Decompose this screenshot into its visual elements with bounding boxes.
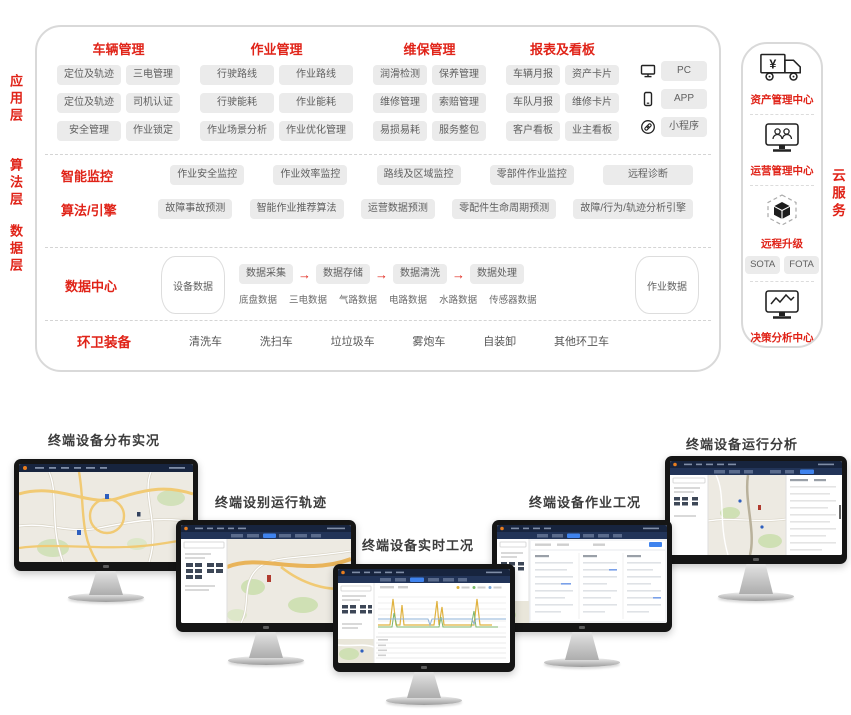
monitor-stand bbox=[407, 672, 441, 698]
layer-label-algorithm: 算法层 bbox=[6, 158, 25, 209]
ota-pills: SOTA FOTA bbox=[745, 256, 819, 274]
equipment-item: 垃垃圾车 bbox=[331, 333, 375, 349]
app-group-reports: 报表及看板 车辆月报 资产卡片 车队月报 维修卡片 客户看板 业主看板 bbox=[506, 39, 619, 151]
analytics-monitor-icon bbox=[763, 289, 801, 326]
data-source: 水路数据 bbox=[439, 292, 477, 306]
group-title-vehicle: 车辆管理 bbox=[92, 39, 144, 58]
feature-pill: 服务整包 bbox=[432, 121, 486, 141]
pc-icon bbox=[639, 63, 656, 80]
cloud-section-title: 资产管理中心 bbox=[751, 92, 814, 107]
feature-pill: 定位及轨迹 bbox=[57, 93, 121, 113]
algo-row-title: 算法/引擎 bbox=[61, 200, 141, 219]
feature-pill: 三电管理 bbox=[126, 65, 180, 85]
group-title-maintenance: 维保管理 bbox=[403, 39, 455, 58]
algo-row-title: 智能监控 bbox=[61, 166, 141, 185]
feature-pill: 客户看板 bbox=[506, 121, 560, 141]
yen-glyph: ¥ bbox=[769, 57, 776, 71]
monitor-stand bbox=[565, 632, 599, 660]
monitor-bezel bbox=[14, 459, 198, 571]
monitor-stand bbox=[739, 564, 773, 594]
pill-grid: 行驶路线 作业路线 行驶能耗 作业能耗 作业场景分析 作业优化管理 bbox=[200, 65, 353, 141]
monitor-bezel bbox=[492, 520, 672, 632]
data-source: 电路数据 bbox=[389, 292, 427, 306]
monitor-chin bbox=[670, 555, 842, 564]
cloud-section-title: 远程升级 bbox=[761, 236, 803, 251]
feature-pill: 司机认证 bbox=[126, 93, 180, 113]
channel-miniprogram: 小程序 bbox=[639, 117, 707, 137]
truck-icon: ¥ bbox=[759, 51, 805, 88]
data-source: 传感器数据 bbox=[489, 292, 537, 306]
screen-realtime-chart bbox=[338, 569, 510, 663]
algo-pill: 路线及区域监控 bbox=[377, 165, 461, 185]
fota-pill: FOTA bbox=[784, 256, 819, 274]
data-source: 气路数据 bbox=[339, 292, 377, 306]
feature-pill: 作业能耗 bbox=[279, 93, 353, 113]
feature-pill: 车辆月报 bbox=[506, 65, 560, 85]
flow-arrow-icon: → bbox=[452, 268, 465, 281]
monitor-label-track: 终端设别运行轨迹 bbox=[215, 492, 327, 511]
cloud-section-ota: 远程升级 SOTA FOTA bbox=[750, 185, 814, 281]
feature-pill: 保养管理 bbox=[432, 65, 486, 85]
feature-pill: 定位及轨迹 bbox=[57, 65, 121, 85]
screen-work-table bbox=[497, 525, 667, 623]
data-source-labels: 底盘数据 三电数据 气路数据 电路数据 水路数据 传感器数据 bbox=[239, 292, 537, 306]
data-flow: 数据采集 → 数据存储 → 数据清洗 → 数据处理 底盘数据 三电数据 气路数据… bbox=[225, 264, 635, 306]
layer-divider bbox=[45, 247, 711, 248]
algo-pill: 作业效率监控 bbox=[273, 165, 347, 185]
flow-arrow-icon: → bbox=[375, 268, 388, 281]
monitor-bezel bbox=[176, 520, 356, 632]
application-layer-row: 车辆管理 定位及轨迹 三电管理 定位及轨迹 司机认证 安全管理 作业锁定 作业管… bbox=[57, 39, 707, 151]
algo-row-monitoring: 智能监控 作业安全监控 作业效率监控 路线及区域监控 零部件作业监控 远程诊断 bbox=[61, 165, 693, 185]
algo-pill: 零部件作业监控 bbox=[490, 165, 574, 185]
algorithm-layer-rows: 智能监控 作业安全监控 作业效率监控 路线及区域监控 零部件作业监控 远程诊断 … bbox=[61, 165, 693, 233]
feature-pill: 易损易耗 bbox=[373, 121, 427, 141]
feature-pill: 作业路线 bbox=[279, 65, 353, 85]
sota-pill: SOTA bbox=[745, 256, 780, 274]
flow-step: 数据清洗 bbox=[393, 264, 447, 284]
device-data-db: 设备数据 bbox=[161, 256, 225, 314]
layer-divider bbox=[45, 154, 711, 155]
flow-arrow-icon: → bbox=[298, 268, 311, 281]
feature-pill: 作业锁定 bbox=[126, 121, 180, 141]
monitor-work-condition bbox=[492, 520, 672, 667]
layer-label-data: 数据层 bbox=[6, 224, 25, 275]
algo-pill: 故障/行为/轨迹分析引擎 bbox=[573, 199, 693, 219]
algo-row-engine: 算法/引擎 故障事故预测 智能作业推荐算法 运营数据预测 零配件生命周期预测 故… bbox=[61, 199, 693, 219]
channel-label: 小程序 bbox=[661, 117, 707, 137]
layer-divider bbox=[45, 320, 711, 321]
cloud-section-title: 运营管理中心 bbox=[751, 163, 814, 178]
channel-app: APP bbox=[639, 89, 707, 109]
equipment-row: 环卫装备 清洗车 洗扫车 垃垃圾车 雾炮车 自装卸 其他环卫车 bbox=[77, 331, 609, 351]
monitor-logo bbox=[579, 626, 585, 629]
group-title-reports: 报表及看板 bbox=[530, 39, 595, 58]
cloud-section-title: 决策分析中心 bbox=[751, 330, 814, 345]
data-center-title: 数据中心 bbox=[65, 276, 161, 295]
feature-pill: 行驶路线 bbox=[200, 65, 274, 85]
monitor-bezel bbox=[333, 564, 515, 672]
flow-step: 数据处理 bbox=[470, 264, 524, 284]
monitor-chin bbox=[338, 663, 510, 672]
feature-pill: 维修卡片 bbox=[565, 93, 619, 113]
algo-pill: 远程诊断 bbox=[603, 165, 693, 185]
algo-pill: 故障事故预测 bbox=[158, 199, 232, 219]
monitor-label-work: 终端设备作业工况 bbox=[529, 492, 641, 511]
monitor-stand bbox=[249, 632, 283, 658]
equipment-item: 自装卸 bbox=[483, 333, 516, 349]
monitor-running-track bbox=[176, 520, 356, 665]
monitor-stand bbox=[89, 571, 123, 595]
infographic-canvas: 车辆管理 定位及轨迹 三电管理 定位及轨迹 司机认证 安全管理 作业锁定 作业管… bbox=[0, 0, 851, 715]
monitor-logo bbox=[103, 565, 109, 568]
db-label: 设备数据 bbox=[173, 278, 213, 293]
cloud-section-operations: 运营管理中心 bbox=[750, 114, 814, 185]
data-layer-row: 数据中心 设备数据 数据采集 → 数据存储 → 数据清洗 → 数据处理 底盘数据… bbox=[65, 255, 699, 315]
flow-step: 数据存储 bbox=[316, 264, 370, 284]
layer-label-application: 应用层 bbox=[6, 74, 25, 125]
algo-pill: 运营数据预测 bbox=[361, 199, 435, 219]
channel-label: PC bbox=[661, 61, 707, 81]
operations-monitor-icon bbox=[763, 122, 801, 159]
work-data-db: 作业数据 bbox=[635, 256, 699, 314]
screen-map-overview bbox=[19, 464, 193, 562]
app-group-operation: 作业管理 行驶路线 作业路线 行驶能耗 作业能耗 作业场景分析 作业优化管理 bbox=[200, 39, 353, 151]
cloud-services-panel: ¥ 资产管理中心 bbox=[741, 42, 823, 348]
algo-pill: 智能作业推荐算法 bbox=[250, 199, 344, 219]
pill-grid: 车辆月报 资产卡片 车队月报 维修卡片 客户看板 业主看板 bbox=[506, 65, 619, 141]
monitor-device-distribution bbox=[14, 459, 198, 602]
app-group-vehicle: 车辆管理 定位及轨迹 三电管理 定位及轨迹 司机认证 安全管理 作业锁定 bbox=[57, 39, 180, 151]
access-channels: PC APP 小程序 bbox=[639, 39, 707, 151]
equipment-item: 其他环卫车 bbox=[554, 333, 609, 349]
data-source: 底盘数据 bbox=[239, 292, 277, 306]
monitor-running-analysis bbox=[665, 456, 847, 601]
monitor-bezel bbox=[665, 456, 847, 564]
feature-pill: 索赔管理 bbox=[432, 93, 486, 113]
monitor-logo bbox=[753, 558, 759, 561]
equipment-item: 清洗车 bbox=[189, 333, 222, 349]
cloud-services-label: 云服务 bbox=[827, 168, 847, 221]
group-title-operation: 作业管理 bbox=[250, 39, 302, 58]
feature-pill: 作业优化管理 bbox=[279, 121, 353, 141]
cloud-section-analytics: 决策分析中心 bbox=[750, 281, 814, 352]
algo-pill: 零配件生命周期预测 bbox=[452, 199, 556, 219]
equipment-item: 雾炮车 bbox=[412, 333, 445, 349]
pill-grid: 润滑检测 保养管理 维修管理 索赔管理 易损易耗 服务整包 bbox=[373, 65, 486, 141]
equipment-items: 清洗车 洗扫车 垃垃圾车 雾炮车 自装卸 其他环卫车 bbox=[189, 333, 609, 349]
miniprogram-icon bbox=[639, 119, 656, 136]
channel-label: APP bbox=[661, 89, 707, 109]
equipment-title: 环卫装备 bbox=[77, 331, 189, 351]
feature-pill: 作业场景分析 bbox=[200, 121, 274, 141]
monitor-label-analysis: 终端设备运行分析 bbox=[686, 434, 798, 453]
flow-step: 数据采集 bbox=[239, 264, 293, 284]
channel-pc: PC bbox=[639, 61, 707, 81]
app-group-maintenance: 维保管理 润滑检测 保养管理 维修管理 索赔管理 易损易耗 服务整包 bbox=[373, 39, 486, 151]
data-flow-steps: 数据采集 → 数据存储 → 数据清洗 → 数据处理 bbox=[239, 264, 524, 284]
monitor-chin bbox=[181, 623, 351, 632]
algo-pill: 作业安全监控 bbox=[170, 165, 244, 185]
db-label: 作业数据 bbox=[647, 278, 687, 293]
cloud-section-assets: ¥ 资产管理中心 bbox=[743, 44, 821, 114]
feature-pill: 业主看板 bbox=[565, 121, 619, 141]
feature-pill: 资产卡片 bbox=[565, 65, 619, 85]
monitor-chin bbox=[497, 623, 667, 632]
feature-pill: 安全管理 bbox=[57, 121, 121, 141]
data-source: 三电数据 bbox=[289, 292, 327, 306]
monitor-label-realtime: 终端设备实时工况 bbox=[362, 535, 474, 554]
monitor-logo bbox=[421, 666, 427, 669]
pill-grid: 定位及轨迹 三电管理 定位及轨迹 司机认证 安全管理 作业锁定 bbox=[57, 65, 180, 141]
monitor-realtime-condition bbox=[333, 564, 515, 705]
feature-pill: 行驶能耗 bbox=[200, 93, 274, 113]
feature-pill: 维修管理 bbox=[373, 93, 427, 113]
feature-pill: 润滑检测 bbox=[373, 65, 427, 85]
monitor-chin bbox=[19, 562, 193, 571]
monitor-label-distribution: 终端设备分布实况 bbox=[48, 430, 160, 449]
screen-analysis-map-list bbox=[670, 461, 842, 555]
equipment-item: 洗扫车 bbox=[260, 333, 293, 349]
phone-icon bbox=[639, 91, 656, 108]
architecture-box: 车辆管理 定位及轨迹 三电管理 定位及轨迹 司机认证 安全管理 作业锁定 作业管… bbox=[35, 25, 721, 372]
feature-pill: 车队月报 bbox=[506, 93, 560, 113]
ota-cube-icon bbox=[764, 193, 800, 232]
monitor-logo bbox=[263, 626, 269, 629]
screen-map-track bbox=[181, 525, 351, 623]
